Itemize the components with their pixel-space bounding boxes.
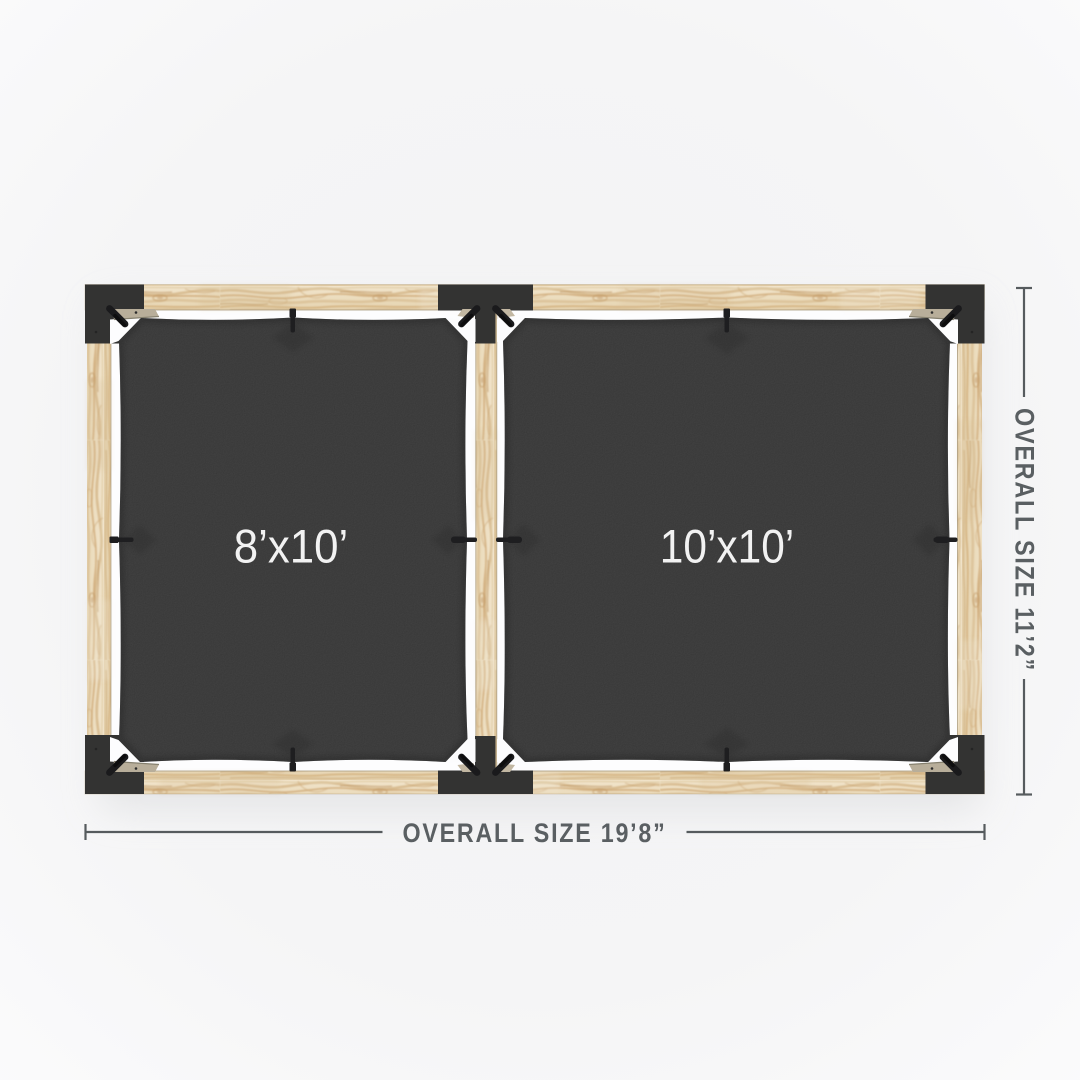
svg-text:8’x10’: 8’x10’ — [234, 520, 349, 573]
svg-text:OVERALL SIZE 19’8”: OVERALL SIZE 19’8” — [403, 818, 667, 848]
svg-text:10’x10’: 10’x10’ — [660, 520, 795, 573]
svg-text:OVERALL SIZE 11’2”: OVERALL SIZE 11’2” — [1010, 408, 1040, 672]
